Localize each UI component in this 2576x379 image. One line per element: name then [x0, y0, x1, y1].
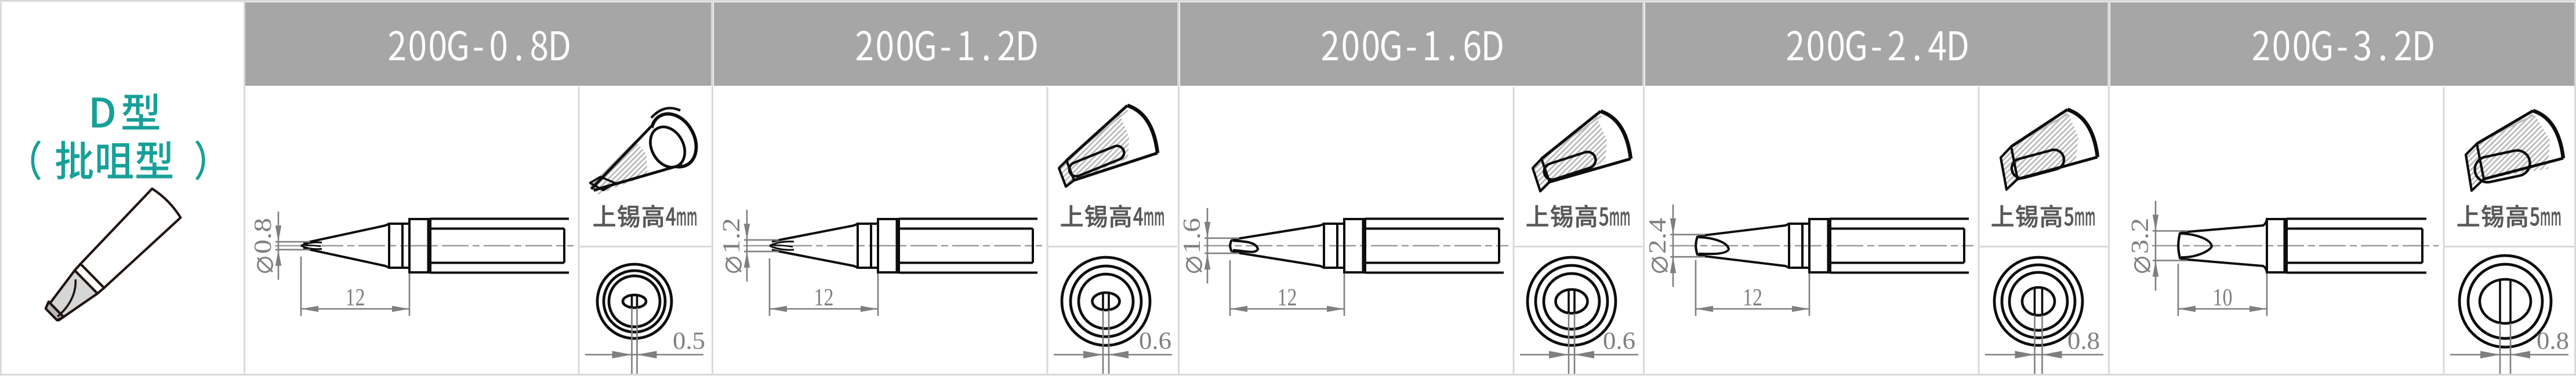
svg-text:0.8: 0.8 — [250, 218, 277, 254]
svg-text:12: 12 — [814, 285, 834, 311]
svg-text:12: 12 — [1278, 285, 1297, 311]
svg-text:3.2: 3.2 — [2127, 218, 2154, 254]
svg-text:0.8: 0.8 — [2537, 328, 2569, 355]
svg-text:0.8: 0.8 — [2067, 328, 2100, 355]
svg-text:0.5: 0.5 — [673, 328, 705, 355]
svg-text:2.4: 2.4 — [1645, 218, 1671, 254]
svg-text:0.6: 0.6 — [1603, 328, 1635, 355]
svg-text:1.6: 1.6 — [1179, 218, 1206, 254]
svg-text:0.6: 0.6 — [1139, 328, 1171, 355]
svg-text:12: 12 — [346, 285, 365, 311]
svg-text:12: 12 — [1743, 285, 1762, 311]
svg-text:1.2: 1.2 — [719, 218, 745, 254]
svg-text:10: 10 — [2213, 285, 2233, 311]
